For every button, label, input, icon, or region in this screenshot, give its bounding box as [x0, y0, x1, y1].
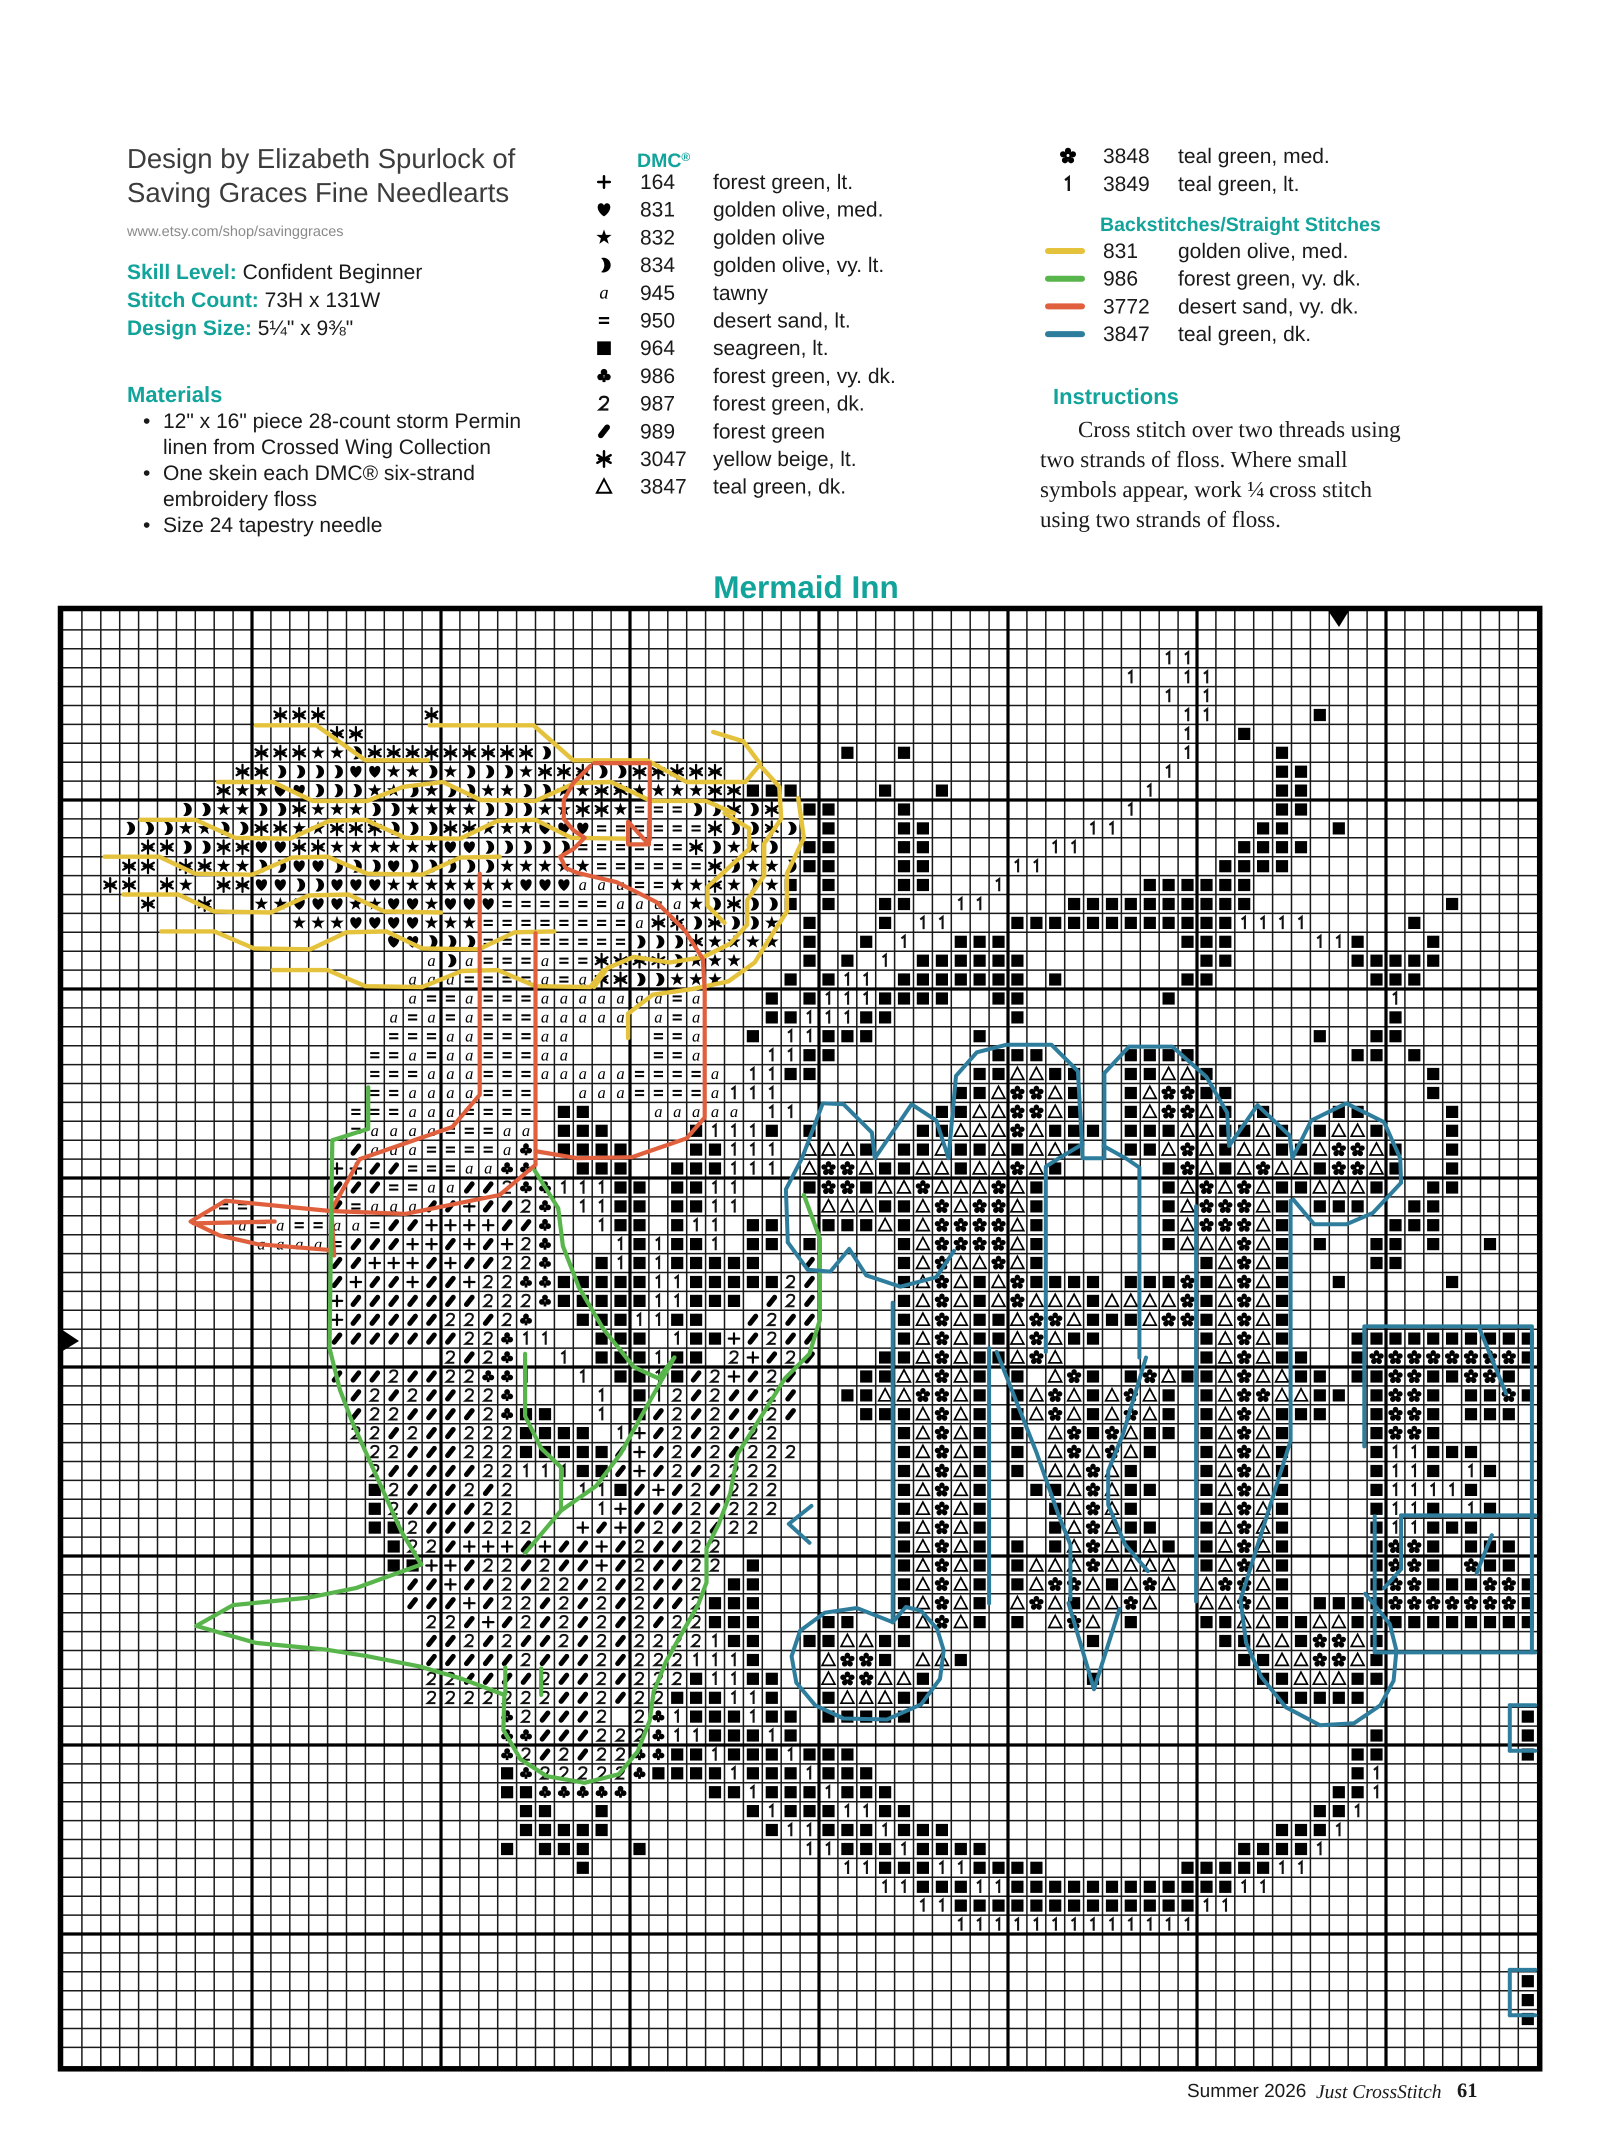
svg-text:964: 964 — [640, 337, 675, 360]
svg-text:Saving Graces Fine Needlearts: Saving Graces Fine Needlearts — [127, 177, 509, 208]
svg-text:3849: 3849 — [1103, 173, 1150, 196]
svg-text:forest green, dk.: forest green, dk. — [713, 393, 865, 416]
svg-text:3772: 3772 — [1103, 295, 1150, 318]
svg-text:Summer 2026: Summer 2026 — [1187, 2081, 1306, 2102]
svg-text:desert sand, vy. dk.: desert sand, vy. dk. — [1178, 295, 1359, 318]
svg-text:•12" x 16" piece 28-count stor: •12" x 16" piece 28-count storm Permin — [143, 410, 521, 433]
svg-text:•Size 24 tapestry needle: •Size 24 tapestry needle — [143, 514, 382, 537]
svg-text:3847: 3847 — [1103, 323, 1150, 346]
svg-text:164: 164 — [640, 171, 675, 194]
svg-text:950: 950 — [640, 310, 675, 333]
svg-text:using two strands of floss.: using two strands of floss. — [1040, 507, 1281, 532]
svg-text:linen from Crossed Wing Collec: linen from Crossed Wing Collection — [163, 436, 491, 459]
svg-text:two strands of floss. Where sm: two strands of floss. Where small — [1040, 447, 1347, 472]
svg-text:•One skein each DMC® six-stran: •One skein each DMC® six-strand — [143, 462, 475, 485]
svg-text:DMC®: DMC® — [637, 150, 690, 172]
svg-text:987: 987 — [640, 393, 675, 416]
svg-text:986: 986 — [640, 365, 675, 388]
svg-text:Backstitches/Straight Stitches: Backstitches/Straight Stitches — [1100, 214, 1381, 236]
svg-text:945: 945 — [640, 282, 675, 305]
svg-text:Design by Elizabeth Spurlock o: Design by Elizabeth Spurlock of — [127, 143, 516, 174]
svg-text:Instructions: Instructions — [1053, 384, 1179, 409]
svg-text:yellow beige, lt.: yellow beige, lt. — [713, 448, 857, 471]
svg-text:forest green, lt.: forest green, lt. — [713, 171, 853, 194]
svg-text:3047: 3047 — [640, 448, 687, 471]
svg-text:834: 834 — [640, 254, 675, 277]
svg-text:3848: 3848 — [1103, 145, 1150, 168]
svg-text:tawny: tawny — [713, 282, 768, 305]
svg-text:3847: 3847 — [640, 476, 687, 499]
svg-text:teal green, lt.: teal green, lt. — [1178, 173, 1299, 196]
svg-text:forest green: forest green — [713, 420, 825, 443]
svg-text:www.etsy.com/shop/savinggraces: www.etsy.com/shop/savinggraces — [126, 224, 344, 240]
svg-text:desert sand, lt.: desert sand, lt. — [713, 310, 851, 333]
svg-text:symbols appear, work ¼ cross s: symbols appear, work ¼ cross stitch — [1040, 477, 1373, 502]
svg-text:Materials: Materials — [127, 382, 222, 407]
svg-text:teal green, dk.: teal green, dk. — [1178, 323, 1311, 346]
svg-text:Skill Level: Confident Beginne: Skill Level: Confident Beginner — [127, 261, 422, 284]
svg-text:forest green, vy. dk.: forest green, vy. dk. — [713, 365, 896, 388]
svg-text:989: 989 — [640, 420, 675, 443]
svg-text:832: 832 — [640, 226, 675, 249]
svg-text:embroidery floss: embroidery floss — [163, 488, 317, 511]
svg-text:teal green, med.: teal green, med. — [1178, 145, 1330, 168]
svg-text:golden olive, med.: golden olive, med. — [1178, 240, 1348, 263]
svg-text:Just CrossStitch: Just CrossStitch — [1316, 2082, 1442, 2103]
svg-text:Stitch Count: 73H x 131W: Stitch Count: 73H x 131W — [127, 289, 380, 312]
svg-text:Mermaid Inn: Mermaid Inn — [713, 569, 899, 605]
svg-text:seagreen, lt.: seagreen, lt. — [713, 337, 829, 360]
svg-text:golden olive: golden olive — [713, 226, 825, 249]
svg-text:986: 986 — [1103, 268, 1138, 291]
svg-text:golden olive, vy. lt.: golden olive, vy. lt. — [713, 254, 884, 277]
svg-text:golden olive, med.: golden olive, med. — [713, 199, 883, 222]
svg-text:forest green, vy. dk.: forest green, vy. dk. — [1178, 268, 1361, 291]
svg-text:Design Size: 5¼" x 9⅜": Design Size: 5¼" x 9⅜" — [127, 317, 353, 340]
svg-text:831: 831 — [1103, 240, 1138, 263]
svg-text:teal green, dk.: teal green, dk. — [713, 476, 846, 499]
svg-text:61: 61 — [1457, 2080, 1478, 2102]
svg-text:Cross stitch over two threads: Cross stitch over two threads using — [1078, 417, 1401, 442]
svg-text:831: 831 — [640, 199, 675, 222]
